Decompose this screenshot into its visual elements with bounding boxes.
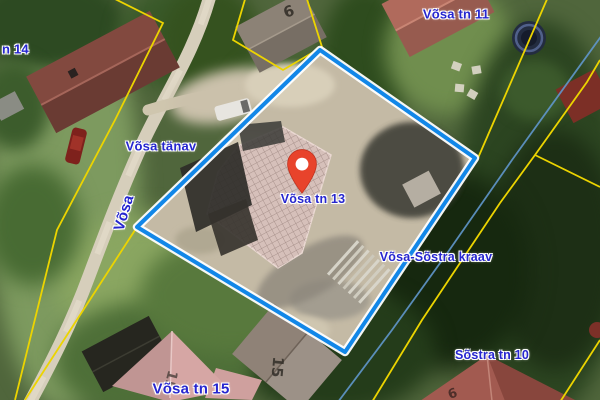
pin-body: [288, 150, 317, 194]
location-marker[interactable]: [283, 148, 321, 195]
label-vosa-street: Võsa: [111, 193, 136, 232]
label-vosa-tn-14: n 14: [2, 43, 29, 56]
label-vosa-tanav: Võsa tänav: [126, 140, 197, 153]
label-vosa-tn-11: Võsa tn 11: [423, 8, 489, 21]
pin-hole: [296, 158, 309, 171]
aerial-map-viewport[interactable]: 615159 n 14Võsa tn 11Võsa tänavVõsaVõsa …: [0, 0, 600, 400]
label-vosa-tn-15: Võsa tn 15: [152, 382, 229, 397]
label-vosa-sostra-kraav: Võsa-Sõstra kraav: [380, 251, 493, 264]
label-sostra-tn-10: Sõstra tn 10: [455, 349, 529, 362]
map-labels-layer: n 14Võsa tn 11Võsa tänavVõsaVõsa tn 13Võ…: [0, 0, 600, 400]
